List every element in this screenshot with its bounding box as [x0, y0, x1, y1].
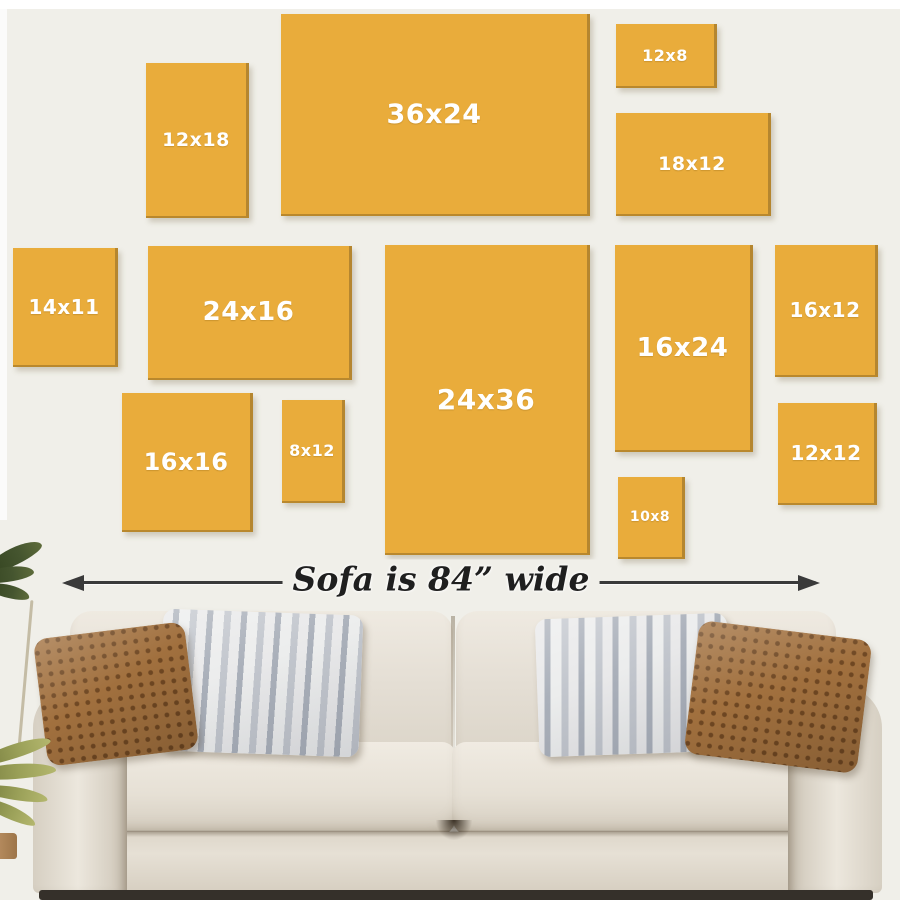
- pillow-rust-left: [33, 621, 199, 767]
- sofa-seat-gap-shadow: [436, 820, 472, 840]
- sofa-width-label: Sofa is 84” wide: [283, 560, 600, 599]
- sofa-base: [45, 832, 869, 894]
- pillow-rust-right: [683, 620, 872, 774]
- arrow-right-icon: [798, 575, 820, 591]
- size-guide-image: 12x1836x2412x818x1214x1124x1624x3616x241…: [0, 0, 900, 900]
- sofa: [0, 0, 900, 900]
- white-frame-top: [0, 0, 900, 9]
- sofa-back-seam: [451, 616, 455, 766]
- arrow-left-icon: [62, 575, 84, 591]
- sofa-floor-shadow: [39, 890, 873, 900]
